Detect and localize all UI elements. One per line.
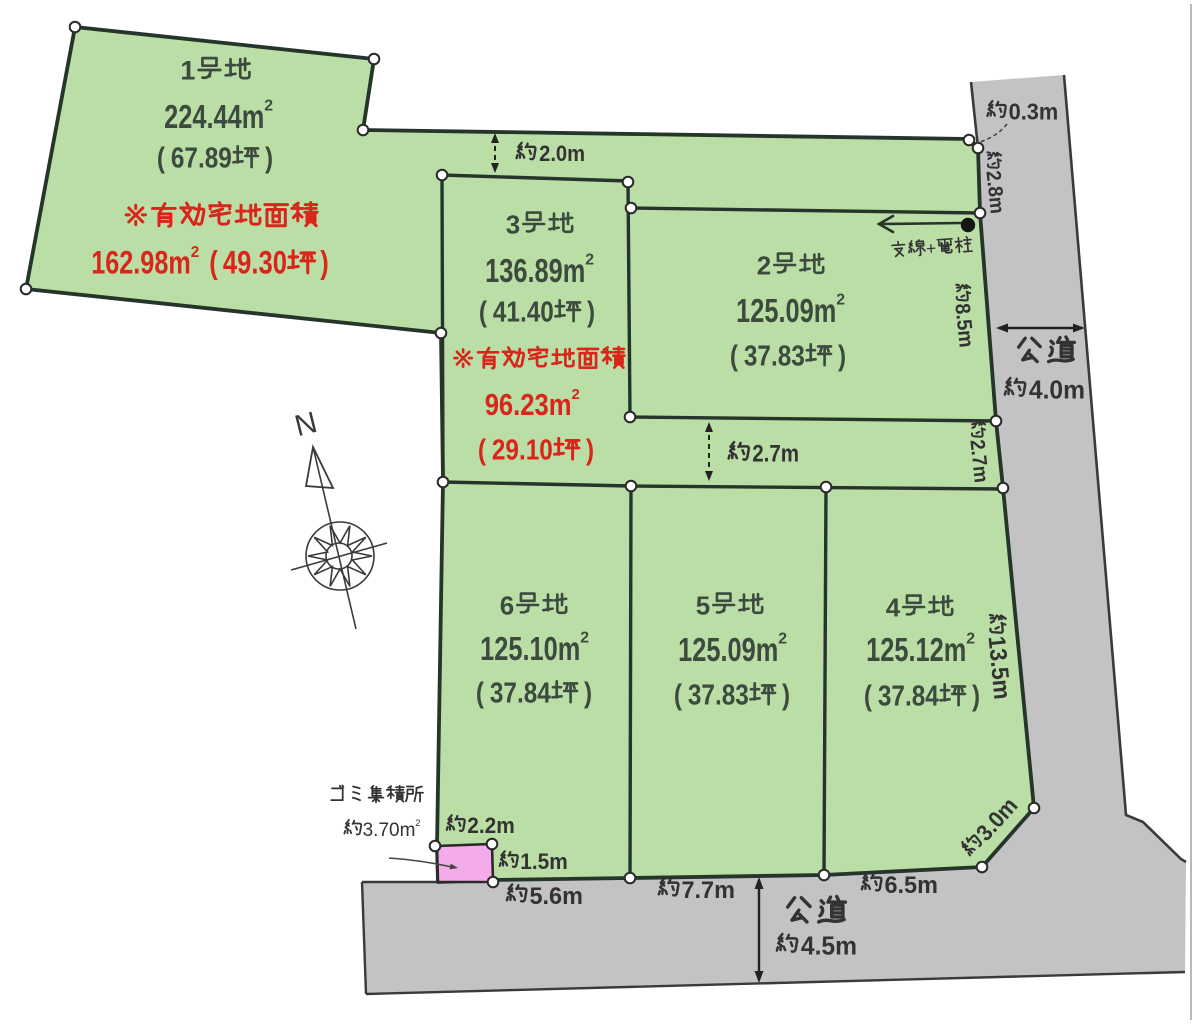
- svg-text:): ): [587, 296, 595, 328]
- svg-text:49.30: 49.30: [223, 245, 287, 281]
- svg-text:125.10m: 125.10m: [480, 630, 580, 667]
- svg-text:(: (: [209, 245, 218, 281]
- svg-text:2: 2: [757, 250, 771, 280]
- svg-text:5: 5: [696, 590, 710, 620]
- svg-text:2.7m: 2.7m: [965, 438, 992, 483]
- svg-text:37.83: 37.83: [688, 679, 749, 711]
- svg-text:6: 6: [500, 590, 514, 620]
- svg-text:37.83: 37.83: [744, 340, 805, 372]
- svg-text:2.0m: 2.0m: [539, 141, 585, 166]
- svg-text:29.10: 29.10: [492, 434, 553, 466]
- svg-text:): ): [838, 340, 846, 372]
- svg-text:(: (: [479, 296, 487, 328]
- svg-text:2: 2: [966, 631, 975, 648]
- svg-text:125.09m: 125.09m: [736, 292, 836, 329]
- svg-text:3: 3: [506, 209, 520, 239]
- svg-text:(: (: [730, 340, 738, 372]
- svg-text:2.7m: 2.7m: [752, 441, 799, 468]
- svg-text:2: 2: [191, 244, 200, 261]
- svg-text:): ): [782, 679, 790, 711]
- svg-text:2.2m: 2.2m: [467, 813, 515, 838]
- svg-text:2: 2: [580, 630, 589, 647]
- svg-text:224.44m: 224.44m: [164, 98, 264, 135]
- svg-text:2: 2: [264, 98, 273, 115]
- svg-text:125.09m: 125.09m: [678, 631, 778, 668]
- svg-text:4.0m: 4.0m: [1029, 374, 1085, 404]
- svg-text:125.12m: 125.12m: [866, 631, 966, 668]
- svg-text:2: 2: [836, 292, 845, 309]
- svg-text:(: (: [476, 677, 484, 709]
- svg-text:37.84: 37.84: [878, 680, 939, 712]
- svg-text:): ): [584, 677, 592, 709]
- svg-text:): ): [586, 434, 594, 466]
- svg-text:): ): [972, 680, 980, 712]
- svg-text:136.89m: 136.89m: [485, 252, 585, 289]
- svg-text:1: 1: [180, 56, 195, 86]
- svg-text:): ): [320, 245, 329, 281]
- svg-text:3.70m: 3.70m: [363, 820, 416, 841]
- svg-text:8.5m: 8.5m: [950, 302, 978, 348]
- svg-text:96.23m: 96.23m: [485, 387, 572, 422]
- svg-text:(: (: [674, 679, 682, 711]
- svg-text:4: 4: [886, 592, 901, 622]
- svg-text:41.40: 41.40: [493, 296, 554, 328]
- svg-text:37.84: 37.84: [490, 677, 551, 709]
- svg-text:6.5m: 6.5m: [885, 872, 938, 899]
- svg-text:2: 2: [585, 252, 594, 269]
- svg-text:(: (: [864, 680, 872, 712]
- svg-text:5.6m: 5.6m: [530, 883, 583, 910]
- svg-text:2: 2: [778, 631, 787, 648]
- svg-text:2: 2: [572, 387, 580, 403]
- svg-text:1.5m: 1.5m: [520, 849, 568, 874]
- svg-text:4.5m: 4.5m: [801, 930, 857, 960]
- svg-text:(: (: [157, 142, 165, 174]
- svg-text:2.8m: 2.8m: [981, 169, 1008, 214]
- svg-text:): ): [265, 142, 273, 174]
- svg-text:67.89: 67.89: [171, 142, 232, 174]
- svg-text:(: (: [478, 434, 486, 466]
- svg-text:7.7m: 7.7m: [682, 877, 735, 904]
- svg-text:162.98m: 162.98m: [91, 245, 191, 281]
- svg-text:2: 2: [415, 818, 420, 828]
- svg-text:+: +: [925, 238, 937, 259]
- svg-text:N: N: [291, 406, 320, 443]
- svg-text:0.3m: 0.3m: [1009, 99, 1059, 125]
